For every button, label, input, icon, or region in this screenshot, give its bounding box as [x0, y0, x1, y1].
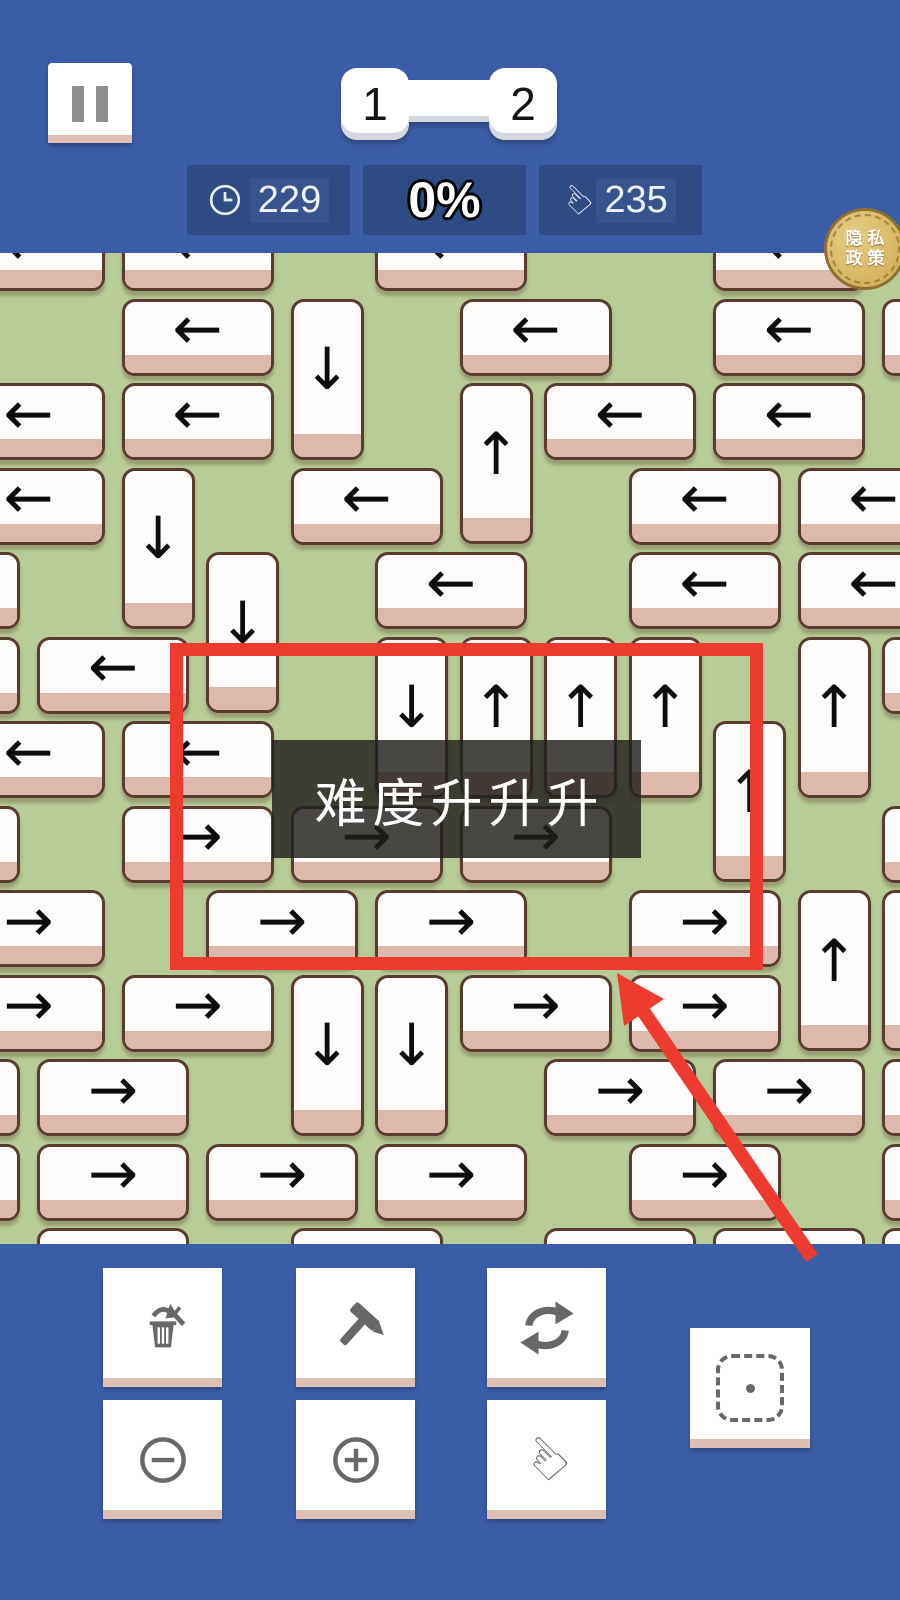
tile-arrow-left[interactable]: ← [37, 637, 189, 714]
right-arrow-icon: → [716, 1231, 862, 1244]
up-arrow-icon: ↑ [801, 640, 868, 775]
discard-tile-button[interactable] [103, 1268, 222, 1387]
left-arrow-icon: ← [378, 253, 524, 272]
timer-value: 229 [250, 178, 329, 223]
difficulty-banner-text: 难度升升升 [308, 762, 604, 837]
tile-arrow-right[interactable]: → [882, 1059, 900, 1136]
tile-arrow-right[interactable]: → [544, 1059, 696, 1136]
select-frame-icon [716, 1354, 784, 1422]
right-arrow-icon: → [0, 1062, 17, 1117]
tile-arrow-left[interactable]: ← [0, 552, 20, 629]
progress-value: 0% [408, 171, 480, 229]
tile-arrow-right[interactable]: → [0, 806, 20, 883]
left-arrow-icon: ← [0, 253, 102, 272]
tile-arrow-right[interactable]: → [629, 975, 781, 1052]
tile-arrow-left[interactable]: ← [629, 468, 781, 545]
left-arrow-icon: ← [0, 640, 17, 695]
tile-arrow-left[interactable]: ← [798, 468, 900, 545]
tile-arrow-right[interactable]: → [460, 975, 612, 1052]
tile-arrow-right[interactable]: → [291, 1228, 443, 1244]
pause-icon [72, 86, 84, 122]
right-arrow-icon: → [294, 1231, 440, 1244]
tile-arrow-left[interactable]: ← [460, 299, 612, 376]
select-area-button[interactable] [690, 1328, 810, 1448]
tile-arrow-right[interactable]: → [375, 1144, 527, 1221]
swap-icon [518, 1299, 576, 1357]
right-arrow-icon: → [885, 1062, 900, 1117]
left-arrow-icon: ← [632, 471, 778, 526]
left-arrow-icon: ← [125, 302, 271, 357]
left-arrow-icon: ← [0, 386, 102, 441]
tile-arrow-right[interactable]: → [713, 1228, 865, 1244]
left-arrow-icon: ← [40, 640, 186, 695]
up-arrow-icon: ↑ [801, 893, 868, 1028]
down-arrow-icon: ↓ [378, 978, 445, 1113]
right-arrow-icon: → [40, 1062, 186, 1117]
right-arrow-icon: → [885, 809, 900, 864]
tile-arrow-left[interactable]: ← [882, 299, 900, 376]
tile-arrow-left[interactable]: ← [882, 637, 900, 714]
left-arrow-icon: ← [547, 386, 693, 441]
left-arrow-icon: ← [801, 471, 900, 526]
left-arrow-icon: ← [0, 555, 17, 610]
tile-arrow-right[interactable]: → [122, 975, 274, 1052]
hammer-button[interactable] [296, 1268, 415, 1387]
right-arrow-icon: → [885, 1231, 900, 1244]
tile-arrow-left[interactable]: ← [0, 721, 105, 798]
plus-circle-icon [326, 1430, 386, 1490]
right-arrow-icon: → [716, 1062, 862, 1117]
right-arrow-icon: → [40, 1147, 186, 1202]
privacy-policy-badge[interactable]: 隐私 政策 [824, 208, 900, 290]
tile-arrow-right[interactable]: → [0, 890, 105, 967]
tap-mode-button[interactable]: ☝ [487, 1400, 606, 1519]
zoom-out-button[interactable] [103, 1400, 222, 1519]
tile-arrow-right[interactable]: → [882, 1228, 900, 1244]
left-arrow-icon: ← [716, 386, 862, 441]
left-arrow-icon: ← [801, 555, 900, 610]
right-arrow-icon: → [632, 1147, 778, 1202]
tile-arrow-left[interactable]: ← [0, 253, 105, 291]
right-arrow-icon: → [547, 1062, 693, 1117]
right-arrow-icon: → [40, 1231, 186, 1244]
right-arrow-icon: → [0, 978, 102, 1033]
privacy-policy-label: 政策 [841, 249, 890, 269]
hand-icon: ☝ [553, 176, 600, 223]
pause-button[interactable] [48, 63, 132, 143]
moves-value: 235 [596, 178, 675, 223]
moves-stat: ☝ 235 [539, 165, 702, 235]
left-arrow-icon: ← [632, 555, 778, 610]
tile-arrow-up[interactable]: ↑ [798, 890, 871, 1051]
level-connector [401, 80, 497, 122]
tile-arrow-down[interactable]: ↓ [291, 975, 364, 1136]
tile-arrow-left[interactable]: ← [713, 383, 865, 460]
clock-icon [208, 183, 242, 217]
right-arrow-icon: → [885, 1147, 900, 1202]
left-arrow-icon: ← [885, 640, 900, 695]
right-arrow-icon: → [632, 978, 778, 1033]
zoom-in-button[interactable] [296, 1400, 415, 1519]
tile-arrow-left[interactable]: ← [0, 383, 105, 460]
level-next[interactable]: 2 [489, 68, 557, 140]
tile-arrow-up[interactable]: ↑ [460, 383, 533, 544]
down-arrow-icon: ↓ [294, 302, 361, 437]
trash-arrow-icon [134, 1299, 192, 1357]
tile-arrow-down[interactable]: ↓ [375, 975, 448, 1136]
tile-arrow-left[interactable]: ← [291, 468, 443, 545]
tile-arrow-left[interactable]: ← [713, 299, 865, 376]
tile-arrow-right[interactable]: → [0, 1144, 20, 1221]
pause-icon [96, 86, 108, 122]
tile-arrow-up[interactable]: ↑ [798, 637, 871, 798]
left-arrow-icon: ← [0, 471, 102, 526]
right-arrow-icon: → [378, 1147, 524, 1202]
difficulty-banner: 难度升升升 [272, 740, 641, 858]
left-arrow-icon: ← [125, 386, 271, 441]
left-arrow-icon: ← [885, 302, 900, 357]
stats-row: 229 0% ☝ 235 [187, 165, 717, 235]
tile-arrow-left[interactable]: ← [122, 253, 274, 291]
tile-arrow-right[interactable]: → [629, 1144, 781, 1221]
right-arrow-icon: → [0, 1147, 17, 1202]
tile-arrow-right[interactable]: → [713, 1059, 865, 1136]
tile-arrow-right[interactable]: → [544, 1228, 696, 1244]
tile-arrow-left[interactable]: ← [0, 468, 105, 545]
progress-stat: 0% [363, 165, 526, 235]
tile-arrow-right[interactable]: → [37, 1144, 189, 1221]
tile-arrow-left[interactable]: ← [544, 383, 696, 460]
level-current[interactable]: 1 [341, 68, 409, 140]
tile-arrow-right[interactable]: → [0, 975, 105, 1052]
tile-arrow-right[interactable]: → [0, 1059, 20, 1136]
up-arrow-icon: ↑ [463, 386, 530, 521]
down-arrow-icon: ↓ [294, 978, 361, 1113]
header: 1 2 229 0% ☝ 235 [0, 0, 900, 253]
level-navigation: 1 2 [341, 64, 557, 144]
tile-arrow-left[interactable]: ← [629, 552, 781, 629]
tile-arrow-up[interactable]: ↑ [882, 890, 900, 1051]
down-arrow-icon: ↓ [125, 471, 192, 606]
tile-arrow-left[interactable]: ← [122, 383, 274, 460]
left-arrow-icon: ← [294, 471, 440, 526]
swap-button[interactable] [487, 1268, 606, 1387]
left-arrow-icon: ← [125, 253, 271, 272]
right-arrow-icon: → [547, 1231, 693, 1244]
tile-arrow-left[interactable]: ← [375, 253, 527, 291]
toolbar: ☝ [0, 1244, 900, 1600]
tile-arrow-right[interactable]: → [882, 1144, 900, 1221]
left-arrow-icon: ← [378, 555, 524, 610]
hammer-icon [327, 1299, 385, 1357]
tile-arrow-down[interactable]: ↓ [122, 468, 195, 629]
tile-arrow-right[interactable]: → [37, 1228, 189, 1244]
timer-stat: 229 [187, 165, 350, 235]
tile-arrow-right[interactable]: → [37, 1059, 189, 1136]
right-arrow-icon: → [125, 978, 271, 1033]
privacy-policy-label: 隐私 [841, 229, 890, 249]
left-arrow-icon: ← [716, 302, 862, 357]
hand-icon: ☝ [511, 1424, 581, 1494]
tile-arrow-right[interactable]: → [882, 806, 900, 883]
tile-arrow-left[interactable]: ← [0, 637, 20, 714]
tile-arrow-right[interactable]: → [206, 1144, 358, 1221]
right-arrow-icon: → [209, 1147, 355, 1202]
left-arrow-icon: ← [0, 724, 102, 779]
tile-arrow-down[interactable]: ↓ [291, 299, 364, 460]
tile-arrow-left[interactable]: ← [798, 552, 900, 629]
right-arrow-icon: → [0, 893, 102, 948]
left-arrow-icon: ← [463, 302, 609, 357]
up-arrow-icon: ↑ [885, 893, 900, 1028]
right-arrow-icon: → [463, 978, 609, 1033]
minus-circle-icon [133, 1430, 193, 1490]
right-arrow-icon: → [0, 809, 17, 864]
tile-arrow-left[interactable]: ← [122, 299, 274, 376]
tile-arrow-left[interactable]: ← [375, 552, 527, 629]
